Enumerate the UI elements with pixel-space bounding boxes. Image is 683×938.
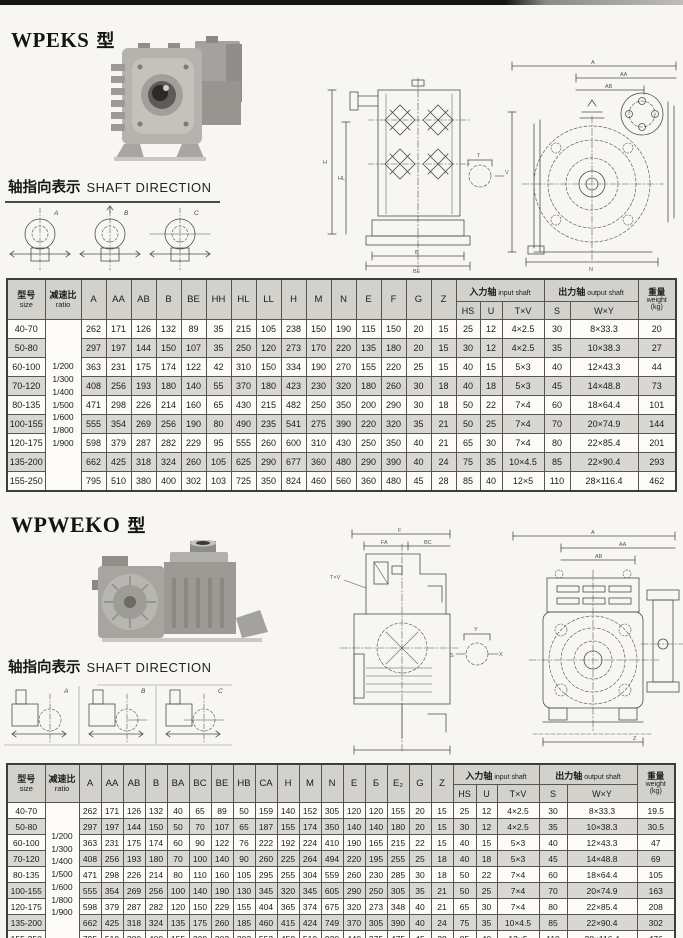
- cell: 20: [409, 819, 431, 835]
- cell: 126: [131, 320, 156, 339]
- cell: 24: [431, 915, 453, 931]
- cell: 231: [101, 835, 123, 851]
- cell: 379: [106, 434, 131, 453]
- col-header-B: B: [145, 764, 167, 803]
- cell: 22×90.4: [567, 915, 637, 931]
- cell: 510: [101, 931, 123, 938]
- cell: 22: [409, 835, 431, 851]
- cell: 200: [356, 396, 381, 415]
- cell: 135: [356, 339, 381, 358]
- cell: 440: [343, 931, 365, 938]
- cell: 460: [255, 915, 277, 931]
- cell: 260: [256, 434, 281, 453]
- cell: 50: [453, 867, 476, 883]
- cell: 7×4: [502, 434, 544, 453]
- cell: 21: [431, 883, 453, 899]
- dim-label-ab: AB: [605, 84, 613, 90]
- col-header-Z: Z: [431, 279, 456, 320]
- col-header-BA: BA: [167, 764, 189, 803]
- cell: 65: [453, 899, 476, 915]
- cell: 305: [365, 915, 387, 931]
- model-name: WPEKS: [11, 28, 89, 52]
- cell: 334: [281, 358, 306, 377]
- cell: 20: [406, 320, 431, 339]
- cell: 30: [544, 320, 570, 339]
- dim-label-a2: A: [591, 530, 595, 536]
- cell: 171: [101, 803, 123, 819]
- cell: 155: [356, 358, 381, 377]
- cell: 18×64.4: [570, 396, 638, 415]
- cell: 380: [123, 931, 145, 938]
- table-row: 40-701/2001/3001/4001/5001/6001/8001/900…: [7, 803, 675, 819]
- cell: 260: [211, 915, 233, 931]
- cell: 170: [306, 339, 331, 358]
- cell: 5×3: [497, 835, 539, 851]
- wpweko-shaft-direction-label: 轴指向表示SHAFT DIRECTION: [8, 656, 212, 677]
- cell-size: 120-175: [7, 434, 45, 453]
- cell: 180: [156, 377, 181, 396]
- table-row: 155-250795510380400302103725350824460560…: [7, 472, 676, 492]
- cell: 150: [306, 320, 331, 339]
- cell: 25: [406, 358, 431, 377]
- cell-size: 70-120: [7, 377, 45, 396]
- cell: 555: [79, 883, 101, 899]
- cell-size: 40-70: [7, 803, 45, 819]
- col-header-LL: LL: [256, 279, 281, 320]
- cell-size: 100-155: [7, 883, 45, 899]
- cell: 65: [189, 803, 211, 819]
- cell: 4×2.5: [502, 320, 544, 339]
- cell: 795: [79, 931, 101, 938]
- cell: 15: [480, 358, 502, 377]
- size-column-header: 型号size: [7, 764, 45, 803]
- cell: 22: [476, 867, 497, 883]
- cell: 415: [277, 915, 299, 931]
- cell: 14×48.8: [567, 851, 637, 867]
- wpeks-shaft-direction-label: 轴指向表示SHAFT DIRECTION: [8, 176, 212, 197]
- cell: 187: [255, 819, 277, 835]
- cell: 360: [306, 453, 331, 472]
- col-header-Z: Z: [431, 764, 453, 803]
- cell: 190: [181, 415, 206, 434]
- cell-size: 50-80: [7, 819, 45, 835]
- cell: 598: [81, 434, 106, 453]
- cell: 7×4: [497, 867, 539, 883]
- col-header-G: G: [409, 764, 431, 803]
- col-header-B: B: [156, 279, 181, 320]
- dim-label-a: A: [591, 60, 595, 66]
- cell: 430: [331, 434, 356, 453]
- table-row: 60-1003632311751746090122762221922244101…: [7, 835, 675, 851]
- cell: 193: [131, 377, 156, 396]
- dim-label-f: F: [398, 528, 402, 534]
- cell: 462: [638, 472, 676, 492]
- wpweko-section-title: WPWEKO型: [11, 512, 146, 538]
- cell: 490: [231, 415, 256, 434]
- cell: 30: [406, 377, 431, 396]
- cell-size: 155-250: [7, 931, 45, 938]
- shaft-direction-en: SHAFT DIRECTION: [87, 660, 212, 675]
- cell: 165: [365, 835, 387, 851]
- shaft-direction-zh: 轴指向表示: [8, 180, 81, 196]
- cell: 45: [409, 931, 431, 938]
- cell-size: 120-175: [7, 899, 45, 915]
- cell: 598: [79, 899, 101, 915]
- cell: 255: [277, 867, 299, 883]
- cell: 73: [638, 377, 676, 396]
- cell: 270: [331, 358, 356, 377]
- wpweko-table-container: 型号size减速比ratioAAAABBBABCBEHBCAHMNEБE₂GZ入…: [6, 763, 676, 938]
- cell: 295: [255, 867, 277, 883]
- cell: 42: [206, 358, 231, 377]
- cell: 269: [123, 883, 145, 899]
- cell: 662: [81, 453, 106, 472]
- ratio-column-header: 减速比ratio: [45, 764, 79, 803]
- cell: 105: [233, 867, 255, 883]
- col-header-A: A: [81, 279, 106, 320]
- cell: 475: [387, 931, 409, 938]
- col-header-BE: BE: [181, 279, 206, 320]
- cell: 18: [480, 377, 502, 396]
- cell: 110: [539, 931, 567, 938]
- col-header-W×Y: W×Y: [567, 785, 637, 803]
- cell: 60: [167, 835, 189, 851]
- cell: 35: [406, 415, 431, 434]
- cell: 70: [167, 851, 189, 867]
- cell: 235: [256, 415, 281, 434]
- cell: 350: [321, 819, 343, 835]
- cell: 40: [539, 835, 567, 851]
- cell: 20×74.9: [567, 883, 637, 899]
- cell: 163: [637, 883, 675, 899]
- cell: 65: [456, 434, 480, 453]
- cell: 18: [431, 851, 453, 867]
- cell: 222: [255, 835, 277, 851]
- cell: 35: [544, 339, 570, 358]
- cell: 155: [277, 819, 299, 835]
- cell: 425: [101, 915, 123, 931]
- cell: 150: [189, 899, 211, 915]
- output-shaft-header: 出力轴output shaft: [539, 764, 637, 785]
- cell: 171: [106, 320, 131, 339]
- wpeks-product-photo: [98, 36, 256, 168]
- cell: 559: [321, 867, 343, 883]
- cell: 725: [231, 472, 256, 492]
- cell: 10×38.3: [570, 339, 638, 358]
- cell: 460: [306, 472, 331, 492]
- col-header-M: M: [306, 279, 331, 320]
- cell-size: 100-155: [7, 415, 45, 434]
- col-header-AA: AA: [101, 764, 123, 803]
- cell: 15: [431, 835, 453, 851]
- cell: 482: [281, 396, 306, 415]
- cell: 30: [456, 339, 480, 358]
- cell: 30: [539, 803, 567, 819]
- cell: 220: [381, 358, 406, 377]
- cell: 195: [365, 851, 387, 867]
- cell: 140: [277, 803, 299, 819]
- cell: 4×2.5: [502, 339, 544, 358]
- cell: 50: [456, 396, 480, 415]
- cell: 80: [206, 415, 231, 434]
- cell: 21: [431, 899, 453, 915]
- cell: 155: [167, 931, 189, 938]
- cell: 12×5: [502, 472, 544, 492]
- cell: 35: [480, 453, 502, 472]
- cell: 69: [637, 851, 675, 867]
- table-row: 120-175598379287282229955552606003104302…: [7, 434, 676, 453]
- cell: 363: [81, 358, 106, 377]
- cell: 7×4: [502, 415, 544, 434]
- cell: 30: [480, 434, 502, 453]
- cell: 250: [306, 396, 331, 415]
- cell: 28: [431, 931, 453, 938]
- cell: 310: [306, 434, 331, 453]
- cell: 375: [365, 931, 387, 938]
- col-header-T×V: T×V: [502, 302, 544, 320]
- cell: 27: [638, 339, 676, 358]
- cell: 304: [299, 867, 321, 883]
- col-header-Б: Б: [365, 764, 387, 803]
- cell: 35: [206, 320, 231, 339]
- cell: 105: [206, 453, 231, 472]
- cell: 22: [480, 396, 502, 415]
- cell: 40: [456, 377, 480, 396]
- cell: 60: [539, 867, 567, 883]
- diagram-letter-a: A: [63, 688, 68, 695]
- cell: 55: [206, 377, 231, 396]
- cell: 28×116.4: [567, 931, 637, 938]
- table-row: 40-701/2001/3001/4001/5001/6001/8001/900…: [7, 320, 676, 339]
- cell: 40: [409, 915, 431, 931]
- cell: 40: [406, 434, 431, 453]
- col-header-U: U: [476, 785, 497, 803]
- col-header-H: H: [277, 764, 299, 803]
- cell: 50: [453, 883, 476, 899]
- cell: 15: [431, 803, 453, 819]
- cell: 12: [476, 803, 497, 819]
- cell: 40: [544, 358, 570, 377]
- shaft-direction-zh: 轴指向表示: [8, 660, 81, 676]
- cell: 8×33.3: [570, 320, 638, 339]
- cell: 85: [539, 915, 567, 931]
- cell: 260: [181, 453, 206, 472]
- cell: 476: [637, 931, 675, 938]
- cell: 290: [343, 883, 365, 899]
- table-row: 50-8029719714415050701076518715517435014…: [7, 819, 675, 835]
- cell: 370: [343, 915, 365, 931]
- cell: 28×116.4: [570, 472, 638, 492]
- cell: 174: [156, 358, 181, 377]
- cell: 132: [145, 803, 167, 819]
- cell: 180: [256, 377, 281, 396]
- cell: 605: [321, 883, 343, 899]
- cell: 400: [156, 472, 181, 492]
- cell: 89: [181, 320, 206, 339]
- cell: 70: [539, 883, 567, 899]
- cell: 920: [321, 931, 343, 938]
- cell: 40: [409, 899, 431, 915]
- cell: 290: [256, 453, 281, 472]
- cell: 471: [81, 396, 106, 415]
- col-header-HL: HL: [231, 279, 256, 320]
- cell: 80: [167, 867, 189, 883]
- catalog-page: WPEKS型: [0, 0, 683, 938]
- cell: 348: [387, 899, 409, 915]
- cell: 40: [480, 472, 502, 492]
- cell: 70: [189, 819, 211, 835]
- cell: 273: [281, 339, 306, 358]
- cell: 214: [156, 396, 181, 415]
- col-header-HS: HS: [456, 302, 480, 320]
- cell: 160: [211, 867, 233, 883]
- cell: 30: [453, 819, 476, 835]
- col-header-G: G: [406, 279, 431, 320]
- cell: 480: [381, 472, 406, 492]
- cell: 293: [638, 453, 676, 472]
- cell: 30.5: [637, 819, 675, 835]
- cell: 152: [299, 803, 321, 819]
- cell: 424: [299, 915, 321, 931]
- cell: 20: [638, 320, 676, 339]
- col-header-U: U: [480, 302, 502, 320]
- cell: 120: [167, 899, 189, 915]
- table-row: 135-200662425318324135175260185460415424…: [7, 915, 675, 931]
- cell: 40: [453, 851, 476, 867]
- cell: 14×48.8: [570, 377, 638, 396]
- cell: 298: [101, 867, 123, 883]
- cell: 140: [181, 377, 206, 396]
- cell: 7×4: [502, 396, 544, 415]
- cell: 30: [406, 396, 431, 415]
- cell: 200: [189, 931, 211, 938]
- cell: 275: [306, 415, 331, 434]
- cell: 18: [476, 851, 497, 867]
- col-header-E: E: [343, 764, 365, 803]
- cell: 262: [81, 320, 106, 339]
- cell: 40: [456, 358, 480, 377]
- table-row: 100-155555354269256190804902355412753902…: [7, 415, 676, 434]
- cell: 70: [544, 415, 570, 434]
- cell: 310: [231, 358, 256, 377]
- cell: 89: [211, 803, 233, 819]
- cell: 190: [343, 835, 365, 851]
- cell: 18×64.4: [567, 867, 637, 883]
- cell: 135: [167, 915, 189, 931]
- cell: 107: [211, 819, 233, 835]
- cell: 423: [281, 377, 306, 396]
- cell: 20: [406, 339, 431, 358]
- cell: 150: [256, 358, 281, 377]
- cell: 320: [277, 883, 299, 899]
- cell: 22×90.4: [570, 453, 638, 472]
- col-header-AA: AA: [106, 279, 131, 320]
- cell: 269: [131, 415, 156, 434]
- cell: 287: [131, 434, 156, 453]
- cell: 305: [321, 803, 343, 819]
- cell: 250: [365, 883, 387, 899]
- col-header-HB: HB: [233, 764, 255, 803]
- cell: 105: [256, 320, 281, 339]
- wpeks-side-drawing: H HL B BE T V: [320, 64, 512, 274]
- cell: 404: [255, 899, 277, 915]
- cell: 15: [431, 358, 456, 377]
- cell: 256: [156, 415, 181, 434]
- cell: 80: [539, 899, 567, 915]
- cell: 365: [277, 899, 299, 915]
- cell: 273: [365, 899, 387, 915]
- cell: 298: [106, 396, 131, 415]
- cell: 260: [381, 377, 406, 396]
- cell: 260: [343, 867, 365, 883]
- dim-label-hl: HL: [338, 176, 345, 182]
- dim-label-s: S: [450, 653, 454, 659]
- cell: 90: [233, 851, 255, 867]
- col-header-W×Y: W×Y: [570, 302, 638, 320]
- input-shaft-header: 入力轴input shaft: [456, 279, 544, 302]
- col-header-N: N: [331, 279, 356, 320]
- cell: 238: [281, 320, 306, 339]
- cell: 215: [387, 835, 409, 851]
- cell: 320: [331, 377, 356, 396]
- cell: 480: [331, 453, 356, 472]
- cell: 220: [331, 339, 356, 358]
- cell: 297: [81, 339, 106, 358]
- cell: 174: [145, 835, 167, 851]
- cell: 115: [356, 320, 381, 339]
- cell: 197: [106, 339, 131, 358]
- dim-label-be: BE: [413, 269, 421, 274]
- wpweko-product-photo: [92, 540, 270, 648]
- cell: 40: [453, 835, 476, 851]
- cell: 107: [181, 339, 206, 358]
- cell: 305: [387, 883, 409, 899]
- cell: 256: [145, 883, 167, 899]
- wpweko-front-drawing: A AA AB Z: [503, 526, 683, 762]
- cell: 132: [156, 320, 181, 339]
- cell: 44: [638, 358, 676, 377]
- cell: 380: [131, 472, 156, 492]
- cell: 229: [211, 899, 233, 915]
- cell: 110: [189, 867, 211, 883]
- cell: 140: [343, 819, 365, 835]
- cell: 120: [343, 803, 365, 819]
- cell: 159: [255, 803, 277, 819]
- col-header-BE: BE: [211, 764, 233, 803]
- cell: 10×38.3: [567, 819, 637, 835]
- input-shaft-header: 入力轴input shaft: [453, 764, 539, 785]
- cell: 824: [281, 472, 306, 492]
- cell: 144: [638, 415, 676, 434]
- cell: 140: [365, 819, 387, 835]
- cell: 262: [79, 803, 101, 819]
- type-suffix: 型: [127, 516, 146, 536]
- cell: 80: [544, 434, 570, 453]
- cell: 100: [167, 883, 189, 899]
- cell: 600: [281, 434, 306, 453]
- cell: 40: [167, 803, 189, 819]
- cell: 95: [206, 434, 231, 453]
- cell: 290: [381, 396, 406, 415]
- cell: 25: [476, 883, 497, 899]
- cell: 130: [233, 883, 255, 899]
- cell: 140: [189, 883, 211, 899]
- cell: 374: [299, 899, 321, 915]
- cell: 400: [145, 931, 167, 938]
- cell: 320: [343, 899, 365, 915]
- cell: 10×4.5: [502, 453, 544, 472]
- cell: 7×4: [497, 883, 539, 899]
